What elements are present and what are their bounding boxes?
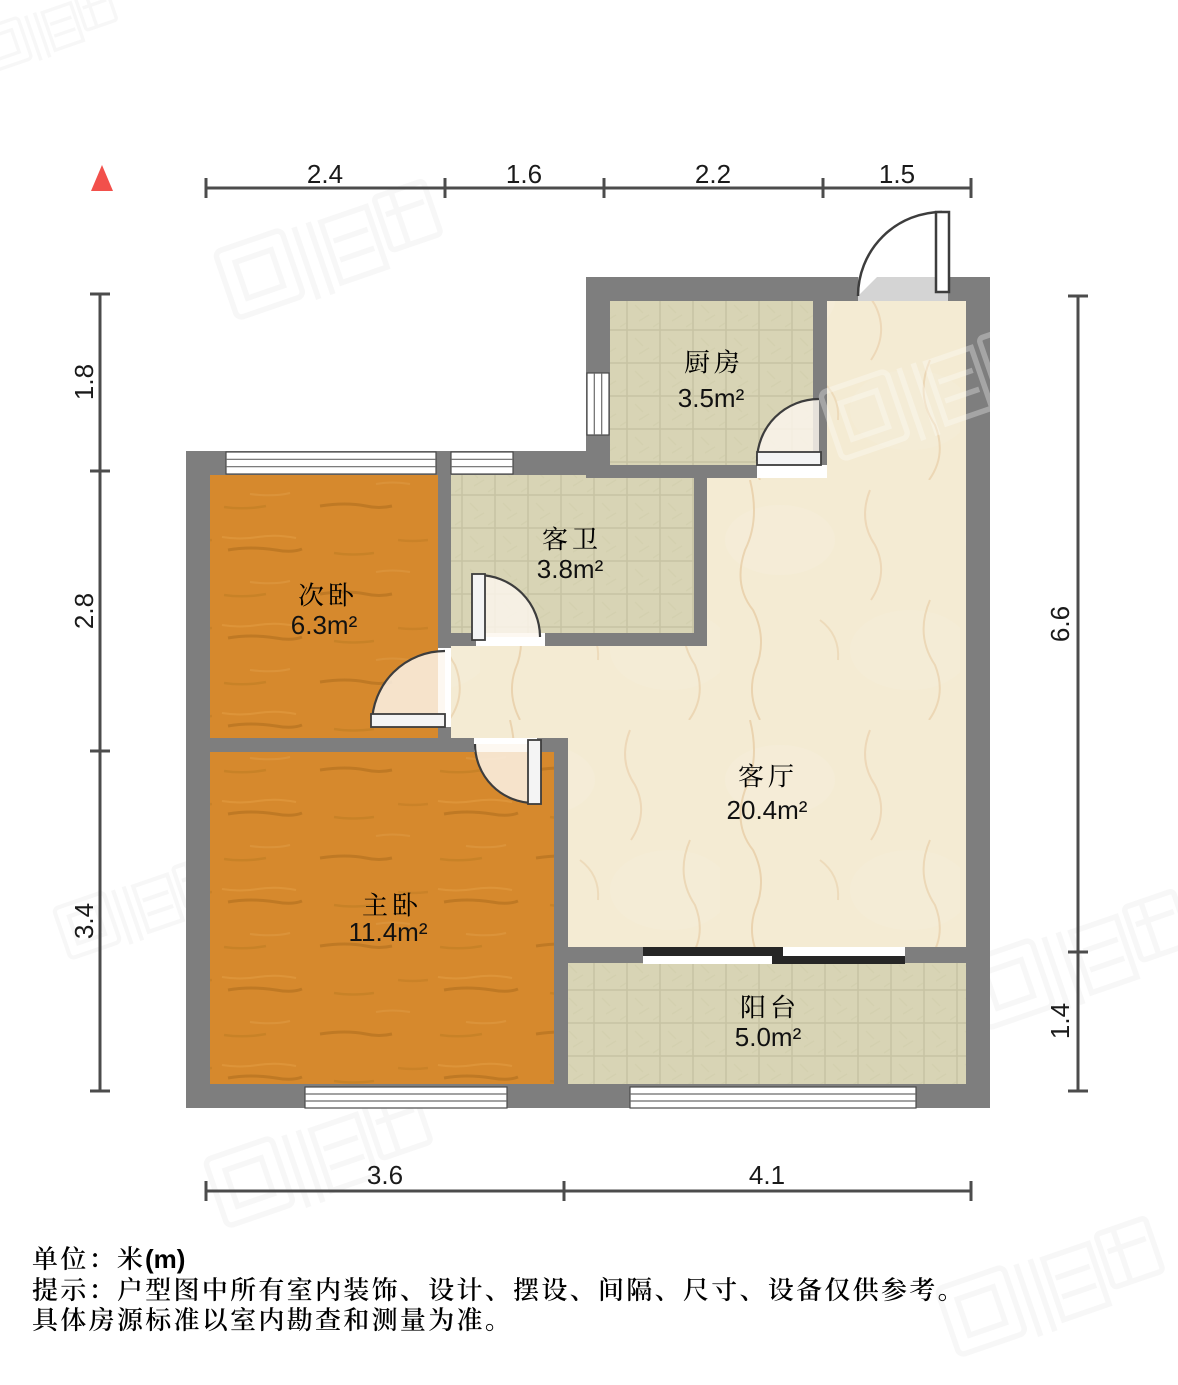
- svg-text:3.4: 3.4: [69, 903, 99, 939]
- svg-text:3.8m²: 3.8m²: [537, 554, 604, 584]
- svg-text:6.3m²: 6.3m²: [291, 610, 358, 640]
- svg-text:5.0m²: 5.0m²: [735, 1022, 802, 1052]
- svg-text:4.1: 4.1: [749, 1160, 785, 1190]
- svg-text:3.6: 3.6: [367, 1160, 403, 1190]
- svg-text:2.8: 2.8: [69, 593, 99, 629]
- svg-text:6.6: 6.6: [1045, 606, 1075, 642]
- svg-text:20.4m²: 20.4m²: [727, 795, 808, 825]
- svg-text:1.4: 1.4: [1045, 1003, 1075, 1039]
- svg-text:2.4: 2.4: [307, 159, 343, 189]
- svg-text:1.8: 1.8: [69, 364, 99, 400]
- svg-text:11.4m²: 11.4m²: [349, 917, 428, 947]
- svg-text:(m): (m): [145, 1244, 185, 1274]
- svg-text:2.2: 2.2: [695, 159, 731, 189]
- svg-text:1.6: 1.6: [506, 159, 542, 189]
- svg-text:1.5: 1.5: [879, 159, 915, 189]
- svg-text:3.5m²: 3.5m²: [678, 383, 745, 413]
